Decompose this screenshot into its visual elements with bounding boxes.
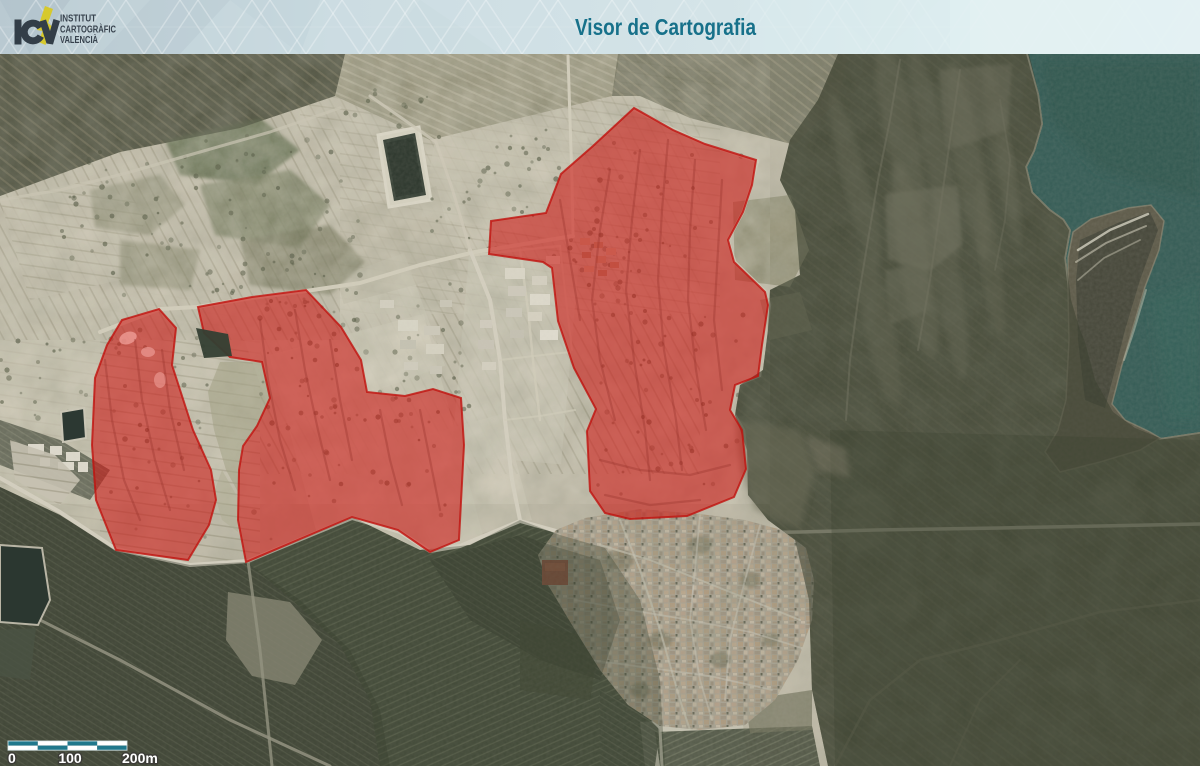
svg-text:100: 100 [58,750,82,766]
svg-text:CARTOGRÀFIC: CARTOGRÀFIC [60,22,116,35]
svg-text:200m: 200m [122,750,158,766]
svg-text:VALENCIÀ: VALENCIÀ [60,33,98,46]
svg-text:INSTITUT: INSTITUT [60,14,96,25]
svg-text:Visor de Cartografia: Visor de Cartografia [575,14,756,40]
svg-text:0: 0 [8,750,16,766]
